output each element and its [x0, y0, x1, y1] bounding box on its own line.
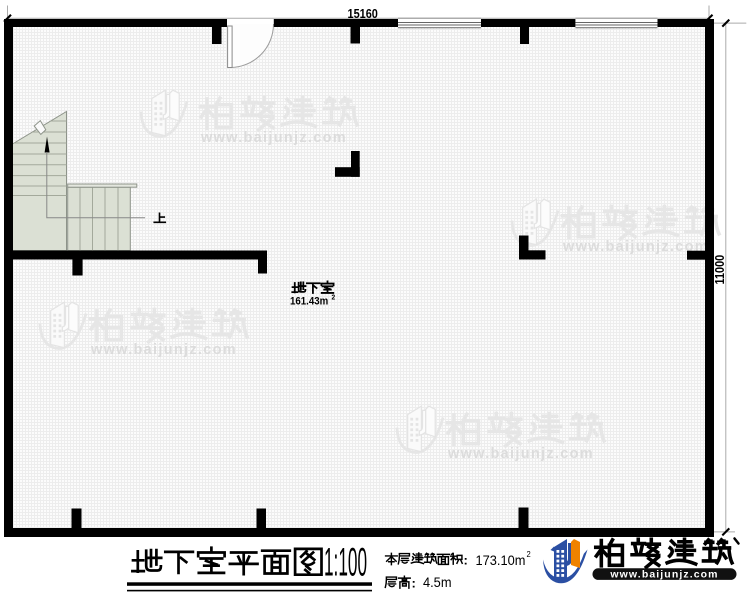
svg-text::: :: [464, 553, 468, 568]
svg-text:161.43m: 161.43m: [290, 296, 328, 308]
svg-text:www.baijunjz.com: www.baijunjz.com: [609, 569, 718, 581]
svg-text:1:100: 1:100: [324, 539, 367, 584]
svg-text:173.10m: 173.10m: [476, 553, 526, 568]
svg-text:www.baijunjz.com: www.baijunjz.com: [90, 342, 237, 358]
svg-text:11000: 11000: [712, 254, 727, 284]
svg-text:www.baijunjz.com: www.baijunjz.com: [447, 446, 594, 462]
svg-text:www.baijunjz.com: www.baijunjz.com: [200, 130, 347, 146]
svg-text:2: 2: [527, 550, 531, 559]
svg-text:15160: 15160: [348, 6, 379, 21]
svg-text:www.baijunjz.com: www.baijunjz.com: [562, 239, 709, 255]
svg-text::: :: [412, 576, 416, 591]
svg-text:2: 2: [332, 294, 336, 301]
svg-text:4.5m: 4.5m: [423, 575, 452, 590]
